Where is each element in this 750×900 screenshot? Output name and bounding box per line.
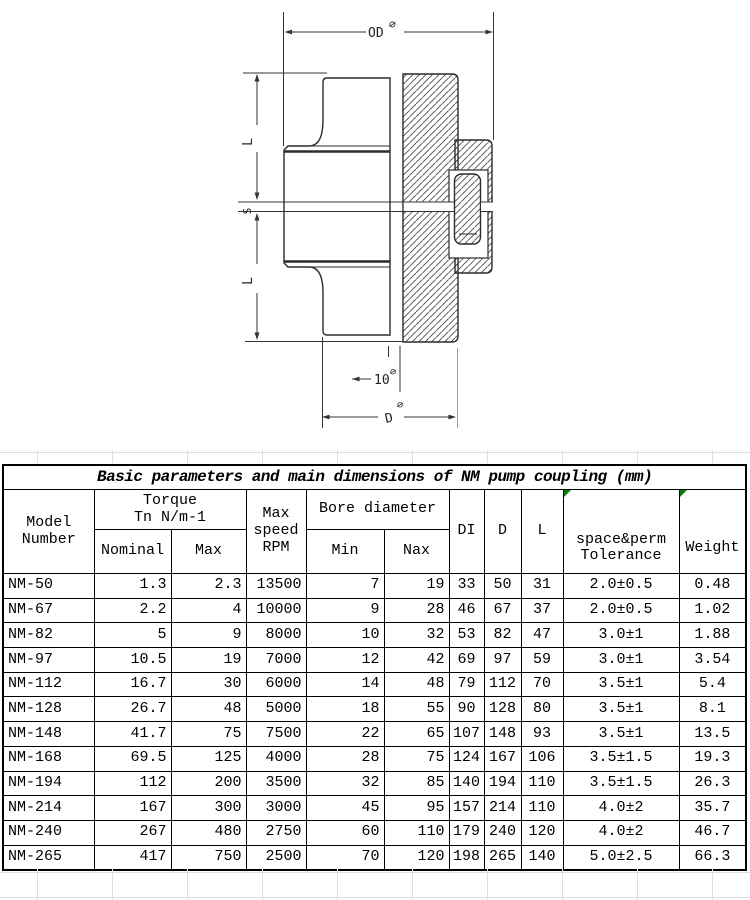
gridline: [112, 450, 113, 463]
title-row: Basic parameters and main dimensions of …: [3, 465, 746, 490]
table-cell: 5: [94, 623, 171, 648]
table-cell: 16.7: [94, 672, 171, 697]
table-cell: 97: [484, 648, 521, 673]
table-cell: 3000: [246, 796, 306, 821]
gridline: [37, 450, 38, 463]
col-header-d: D: [484, 490, 521, 574]
gap10-arrow: [352, 377, 360, 382]
table-cell: 19: [384, 574, 449, 599]
table-cell: 5.0±2.5: [563, 845, 679, 870]
table-cell: 167: [484, 746, 521, 771]
table-cell: 124: [449, 746, 484, 771]
gridline: [562, 450, 563, 463]
table-cell: 157: [449, 796, 484, 821]
table-cell: 70: [306, 845, 384, 870]
table-row: NM-14841.77575002265107148933.5±113.5: [3, 722, 746, 747]
table-cell: 35.7: [679, 796, 746, 821]
gridline: [262, 450, 263, 463]
table-cell: 120: [384, 845, 449, 870]
col-header-bore-diameter: Bore diameter: [306, 490, 449, 530]
table-cell: 28: [306, 746, 384, 771]
table-cell: 48: [171, 697, 246, 722]
s-label: S: [241, 208, 254, 215]
table-cell: 214: [484, 796, 521, 821]
table-cell: NM-148: [3, 722, 94, 747]
table-cell: 4: [171, 598, 246, 623]
table-cell: 82: [484, 623, 521, 648]
table-cell: 112: [484, 672, 521, 697]
table-cell: 85: [384, 771, 449, 796]
table-cell: 2.0±0.5: [563, 598, 679, 623]
gridline: [712, 450, 713, 463]
table-cell: 90: [449, 697, 484, 722]
table-cell: 110: [384, 820, 449, 845]
gridline: [712, 869, 713, 900]
d-phi-symbol: ∅: [396, 399, 405, 411]
table-cell: 10: [306, 623, 384, 648]
table-cell: 46: [449, 598, 484, 623]
table-cell: NM-168: [3, 746, 94, 771]
table-cell: 3.5±1.5: [563, 771, 679, 796]
table-row: NM-672.24100009284667372.0±0.51.02: [3, 598, 746, 623]
table-row: NM-214167300300045951572141104.0±235.7: [3, 796, 746, 821]
table-cell: NM-82: [3, 623, 94, 648]
table-cell: NM-240: [3, 820, 94, 845]
table-cell: 3.5±1: [563, 697, 679, 722]
gap10-phi-symbol: ∅: [389, 366, 398, 378]
table-cell: 69: [449, 648, 484, 673]
table-cell: 2.3: [171, 574, 246, 599]
col-header-di: DI: [449, 490, 484, 574]
table-title: Basic parameters and main dimensions of …: [3, 465, 746, 490]
table-cell: 69.5: [94, 746, 171, 771]
table-cell: 179: [449, 820, 484, 845]
table-cell: NM-67: [3, 598, 94, 623]
l-lower-label: L: [241, 277, 256, 285]
col-header-max: Max: [171, 530, 246, 574]
gridline: [412, 450, 413, 463]
table-cell: 46.7: [679, 820, 746, 845]
table-cell: 45: [306, 796, 384, 821]
table-cell: 128: [484, 697, 521, 722]
table-cell: 5.4: [679, 672, 746, 697]
table-cell: 4.0±2: [563, 820, 679, 845]
table-cell: 59: [521, 648, 563, 673]
col-header-nominal: Nominal: [94, 530, 171, 574]
table-cell: 3.0±1: [563, 648, 679, 673]
table-cell: NM-112: [3, 672, 94, 697]
table-cell: 750: [171, 845, 246, 870]
table-cell: 6000: [246, 672, 306, 697]
gridline: [187, 450, 188, 463]
gridline: [637, 869, 638, 900]
table-cell: 140: [521, 845, 563, 870]
table-cell: 13.5: [679, 722, 746, 747]
table-row: NM-16869.5125400028751241671063.5±1.519.…: [3, 746, 746, 771]
table-cell: 107: [449, 722, 484, 747]
table-cell: 0.48: [679, 574, 746, 599]
od-phi-symbol: ∅: [388, 17, 398, 31]
table-row: NM-11216.7306000144879112703.5±15.4: [3, 672, 746, 697]
table-cell: 417: [94, 845, 171, 870]
od-label: OD: [368, 26, 384, 41]
table-cell: 60: [306, 820, 384, 845]
table-cell: 106: [521, 746, 563, 771]
table-cell: 55: [384, 697, 449, 722]
table-cell: 3.0±1: [563, 623, 679, 648]
table-cell: 70: [521, 672, 563, 697]
table-cell: 14: [306, 672, 384, 697]
table-cell: 19.3: [679, 746, 746, 771]
gridline: [637, 450, 638, 463]
table-cell: 41.7: [94, 722, 171, 747]
col-header-max-speed: Max speed RPM: [246, 490, 306, 574]
table-cell: 2500: [246, 845, 306, 870]
table-cell: 3500: [246, 771, 306, 796]
table-cell: NM-214: [3, 796, 94, 821]
col-header-weight-label: Weight: [685, 539, 739, 556]
table-cell: 47: [521, 623, 563, 648]
table-cell: 22: [306, 722, 384, 747]
table-cell: 7: [306, 574, 384, 599]
table-row: NM-2654177502500701201982651405.0±2.566.…: [3, 845, 746, 870]
table-cell: 31: [521, 574, 563, 599]
table-cell: 19: [171, 648, 246, 673]
table-cell: 10000: [246, 598, 306, 623]
table-cell: 42: [384, 648, 449, 673]
coupling-section-drawing: OD ∅ L S L 10 ∅: [0, 0, 750, 460]
table-cell: 32: [384, 623, 449, 648]
table-cell: 140: [449, 771, 484, 796]
table-cell: 240: [484, 820, 521, 845]
table-cell: 10.5: [94, 648, 171, 673]
table-cell: 3.5±1: [563, 722, 679, 747]
parameter-table: Basic parameters and main dimensions of …: [2, 464, 747, 871]
table-body: NM-501.32.3135007193350312.0±0.50.48NM-6…: [3, 574, 746, 870]
table-cell: 5000: [246, 697, 306, 722]
table-cell: 1.3: [94, 574, 171, 599]
table-cell: 26.7: [94, 697, 171, 722]
table-row: NM-12826.7485000185590128803.5±18.1: [3, 697, 746, 722]
gridline: [337, 450, 338, 463]
table-cell: 75: [171, 722, 246, 747]
col-header-torque: Torque Tn N/m-1: [94, 490, 246, 530]
gridline: [487, 450, 488, 463]
table-row: NM-2402674802750601101792401204.0±246.7: [3, 820, 746, 845]
table-cell: 194: [484, 771, 521, 796]
table-cell: 8.1: [679, 697, 746, 722]
table-cell: 48: [384, 672, 449, 697]
table-cell: 148: [484, 722, 521, 747]
table-cell: 3.54: [679, 648, 746, 673]
table-cell: NM-265: [3, 845, 94, 870]
gridline: [37, 869, 38, 900]
table-cell: 2.0±0.5: [563, 574, 679, 599]
table-cell: 28: [384, 598, 449, 623]
table-cell: NM-128: [3, 697, 94, 722]
table-cell: 2750: [246, 820, 306, 845]
table-cell: 13500: [246, 574, 306, 599]
table-cell: 26.3: [679, 771, 746, 796]
table-cell: 75: [384, 746, 449, 771]
table-cell: 3.5±1: [563, 672, 679, 697]
table-cell: 8000: [246, 623, 306, 648]
table-cell: 4000: [246, 746, 306, 771]
gridline: [412, 869, 413, 900]
table-cell: 2.2: [94, 598, 171, 623]
table-cell: 95: [384, 796, 449, 821]
table-cell: 125: [171, 746, 246, 771]
col-header-model: Model Number: [3, 490, 94, 574]
table-cell: 37: [521, 598, 563, 623]
table-cell: 12: [306, 648, 384, 673]
table-cell: NM-194: [3, 771, 94, 796]
col-header-min: Min: [306, 530, 384, 574]
gridline: [562, 869, 563, 900]
gridline: [487, 869, 488, 900]
table-cell: 480: [171, 820, 246, 845]
table-cell: 4.0±2: [563, 796, 679, 821]
table-row: NM-8259800010325382473.0±11.88: [3, 623, 746, 648]
comment-marker-icon: [564, 490, 571, 497]
gridline: [187, 869, 188, 900]
l-upper-label: L: [241, 138, 256, 146]
table-cell: 267: [94, 820, 171, 845]
gap10-label: 10: [374, 373, 390, 388]
comment-marker-icon: [680, 490, 687, 497]
gridline: [112, 869, 113, 900]
table-cell: 67: [484, 598, 521, 623]
table-cell: 3.5±1.5: [563, 746, 679, 771]
left-hub-outline: [284, 78, 390, 335]
table-cell: 1.88: [679, 623, 746, 648]
table-cell: 53: [449, 623, 484, 648]
table-cell: 265: [484, 845, 521, 870]
table-cell: 110: [521, 796, 563, 821]
table-cell: 1.02: [679, 598, 746, 623]
col-header-tolerance: space&perm Tolerance: [563, 490, 679, 574]
table-cell: 80: [521, 697, 563, 722]
gridline: [262, 869, 263, 900]
col-header-nax: Nax: [384, 530, 449, 574]
parameter-table-wrap: Basic parameters and main dimensions of …: [2, 464, 747, 871]
table-cell: 200: [171, 771, 246, 796]
table-cell: 9: [171, 623, 246, 648]
table-cell: 9: [306, 598, 384, 623]
header-row-1: Model Number Torque Tn N/m-1 Max speed R…: [3, 490, 746, 530]
table-cell: 7500: [246, 722, 306, 747]
table-cell: 66.3: [679, 845, 746, 870]
table-cell: NM-97: [3, 648, 94, 673]
table-cell: 300: [171, 796, 246, 821]
table-cell: 50: [484, 574, 521, 599]
table-cell: 110: [521, 771, 563, 796]
col-header-weight: Weight: [679, 490, 746, 574]
table-row: NM-501.32.3135007193350312.0±0.50.48: [3, 574, 746, 599]
table-cell: 79: [449, 672, 484, 697]
table-row: NM-194112200350032851401941103.5±1.526.3: [3, 771, 746, 796]
table-cell: 112: [94, 771, 171, 796]
table-cell: 198: [449, 845, 484, 870]
page: OD ∅ L S L 10 ∅: [0, 0, 750, 900]
table-cell: NM-50: [3, 574, 94, 599]
d-label: D: [384, 411, 395, 427]
table-cell: 32: [306, 771, 384, 796]
table-cell: 18: [306, 697, 384, 722]
table-cell: 120: [521, 820, 563, 845]
col-header-l: L: [521, 490, 563, 574]
table-cell: 167: [94, 796, 171, 821]
gridline: [337, 869, 338, 900]
col-header-tolerance-label: space&perm Tolerance: [576, 531, 666, 565]
table-cell: 93: [521, 722, 563, 747]
table-row: NM-9710.519700012426997593.0±13.54: [3, 648, 746, 673]
table-cell: 7000: [246, 648, 306, 673]
table-cell: 33: [449, 574, 484, 599]
table-cell: 65: [384, 722, 449, 747]
elastic-insert-section: [455, 174, 481, 244]
table-cell: 30: [171, 672, 246, 697]
